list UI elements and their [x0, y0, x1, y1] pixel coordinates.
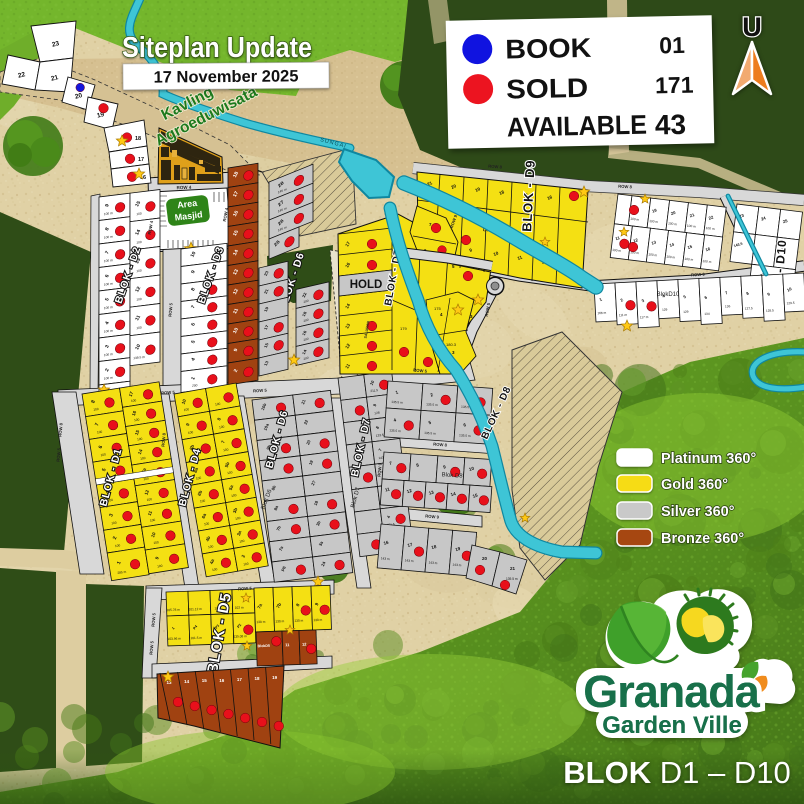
- svg-text:19: 19: [272, 675, 278, 680]
- svg-text:103.96 m: 103.96 m: [168, 636, 182, 640]
- svg-text:100: 100: [136, 240, 142, 245]
- svg-text:117 m: 117 m: [640, 315, 649, 319]
- svg-text:100: 100: [146, 497, 152, 502]
- svg-text:143 m: 143 m: [452, 563, 462, 568]
- svg-text:Silver 360°: Silver 360°: [661, 504, 735, 520]
- svg-text:HOLD: HOLD: [350, 279, 383, 291]
- svg-text:BlokD5: BlokD5: [258, 644, 271, 648]
- svg-text:111 m: 111 m: [619, 313, 628, 317]
- svg-text:135.08 m: 135.08 m: [233, 634, 247, 638]
- svg-text:100: 100: [93, 407, 99, 412]
- svg-text:100: 100: [140, 456, 146, 461]
- svg-text:16: 16: [219, 678, 225, 683]
- svg-text:100: 100: [136, 297, 142, 302]
- svg-text:U: U: [742, 12, 762, 42]
- svg-text:20: 20: [482, 556, 488, 561]
- svg-text:ROW 4: ROW 4: [176, 185, 191, 191]
- svg-text:15: 15: [202, 678, 208, 683]
- svg-text:ROW 5: ROW 5: [253, 388, 268, 394]
- svg-text:100: 100: [157, 564, 163, 569]
- svg-text:ROW 5: ROW 5: [238, 586, 253, 592]
- svg-text:135.5 m: 135.5 m: [424, 431, 436, 436]
- svg-text:127.5: 127.5: [745, 306, 753, 310]
- svg-text:Siteplan Update: Siteplan Update: [122, 32, 312, 64]
- svg-text:SOLD: SOLD: [506, 73, 589, 105]
- svg-text:Gold 360°: Gold 360°: [661, 477, 728, 493]
- svg-text:21: 21: [510, 566, 516, 571]
- svg-text:17 November 2025: 17 November 2025: [153, 67, 298, 86]
- svg-text:134: 134: [704, 312, 710, 316]
- svg-text:100: 100: [137, 437, 143, 442]
- svg-text:BLOK D1 – D10: BLOK D1 – D10: [563, 755, 790, 790]
- svg-text:43: 43: [655, 109, 687, 141]
- svg-text:100: 100: [134, 417, 140, 422]
- svg-text:171: 171: [655, 72, 694, 99]
- svg-text:166 m: 166 m: [597, 311, 606, 315]
- svg-text:Platinum 360°: Platinum 360°: [661, 451, 756, 467]
- svg-text:100: 100: [136, 269, 142, 274]
- svg-text:179: 179: [400, 326, 407, 331]
- svg-text:129.5: 129.5: [786, 301, 794, 305]
- svg-text:135.5 m: 135.5 m: [459, 433, 471, 438]
- svg-text:136: 136: [725, 304, 731, 308]
- svg-text:135.5 m: 135.5 m: [389, 428, 401, 433]
- svg-text:17: 17: [138, 157, 144, 163]
- svg-text:200: 200: [192, 383, 198, 388]
- svg-text:BlokD10: BlokD10: [657, 292, 680, 298]
- svg-text:135.5 m: 135.5 m: [391, 400, 403, 405]
- svg-text:01: 01: [659, 32, 685, 59]
- svg-text:Garden Ville: Garden Ville: [602, 712, 742, 739]
- svg-text:100: 100: [115, 543, 121, 548]
- svg-text:AVAILABLE: AVAILABLE: [507, 110, 648, 143]
- svg-text:143 m: 143 m: [381, 556, 391, 561]
- svg-text:180.3: 180.3: [446, 342, 457, 347]
- svg-text:100: 100: [111, 521, 117, 526]
- svg-text:175: 175: [434, 306, 441, 311]
- svg-text:128: 128: [374, 411, 380, 416]
- svg-text:14: 14: [184, 679, 190, 684]
- svg-text:100: 100: [100, 452, 106, 457]
- svg-text:101.12 m: 101.12 m: [189, 607, 203, 611]
- svg-text:105.78 m: 105.78 m: [167, 608, 181, 612]
- svg-text:130 m: 130 m: [294, 618, 303, 622]
- svg-text:130 m: 130 m: [256, 620, 265, 624]
- svg-text:ROW 5: ROW 5: [161, 390, 176, 396]
- svg-text:102 m: 102 m: [235, 605, 244, 609]
- svg-text:129: 129: [662, 308, 668, 312]
- svg-text:BOOK: BOOK: [505, 33, 592, 65]
- svg-text:135.5 m: 135.5 m: [426, 402, 438, 407]
- svg-text:ROW 8: ROW 8: [618, 184, 633, 190]
- svg-text:129: 129: [683, 310, 689, 314]
- svg-text:ROW 9: ROW 9: [691, 272, 706, 278]
- svg-text:18: 18: [135, 136, 141, 142]
- svg-text:Granada: Granada: [583, 666, 761, 717]
- svg-text:143 m: 143 m: [405, 558, 415, 563]
- svg-text:100: 100: [150, 518, 156, 523]
- svg-text:ROW 8: ROW 8: [488, 164, 503, 170]
- svg-text:100: 100: [136, 212, 142, 217]
- svg-text:18: 18: [254, 676, 260, 681]
- svg-text:ROW 8: ROW 8: [433, 442, 448, 448]
- svg-text:130 m: 130 m: [313, 618, 322, 622]
- svg-text:100: 100: [153, 540, 159, 545]
- svg-text:17: 17: [237, 677, 243, 682]
- svg-text:128.5: 128.5: [766, 308, 774, 312]
- svg-text:130 m: 130 m: [275, 619, 284, 623]
- svg-text:143 m: 143 m: [428, 561, 438, 566]
- svg-text:100: 100: [97, 430, 103, 435]
- svg-text:101.5 m: 101.5 m: [190, 636, 202, 640]
- svg-text:100: 100: [136, 326, 142, 331]
- svg-text:Bronze 360°: Bronze 360°: [661, 531, 744, 547]
- svg-text:139.5 m: 139.5 m: [506, 577, 518, 581]
- svg-text:100: 100: [131, 398, 137, 403]
